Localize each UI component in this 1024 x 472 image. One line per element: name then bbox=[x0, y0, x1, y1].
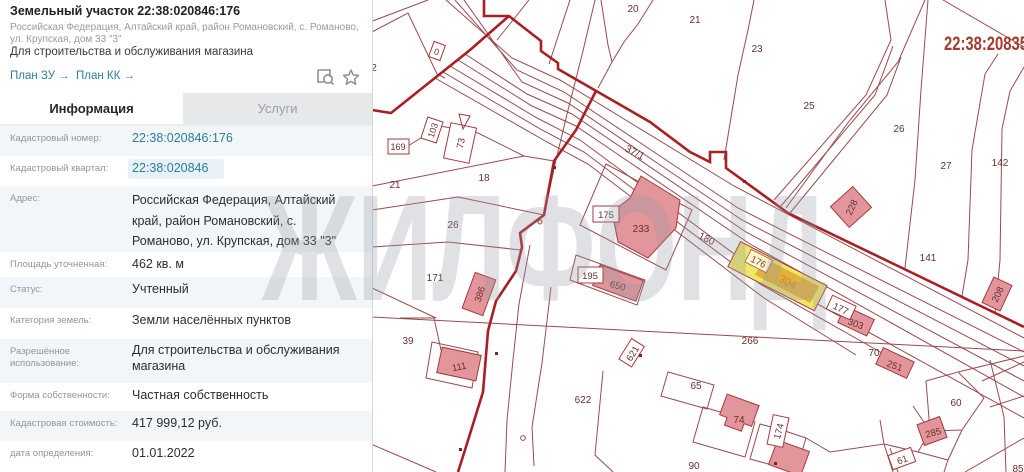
svg-text:266: 266 bbox=[742, 336, 759, 347]
svg-text:21: 21 bbox=[689, 15, 701, 26]
svg-text:141: 141 bbox=[920, 253, 937, 264]
svg-text:169: 169 bbox=[390, 142, 405, 152]
svg-text:90: 90 bbox=[688, 461, 700, 472]
svg-text:27: 27 bbox=[940, 161, 952, 172]
svg-text:65: 65 bbox=[690, 381, 702, 392]
svg-text:60: 60 bbox=[950, 398, 962, 409]
svg-text:85: 85 bbox=[1012, 464, 1024, 472]
svg-text:22:38:20835: 22:38:20835 bbox=[944, 34, 1024, 55]
svg-text:622: 622 bbox=[575, 395, 592, 406]
svg-text:142: 142 bbox=[992, 158, 1009, 169]
svg-text:39: 39 bbox=[402, 336, 414, 347]
svg-text:70: 70 bbox=[868, 348, 880, 359]
svg-text:25: 25 bbox=[803, 101, 815, 112]
svg-text:26: 26 bbox=[893, 124, 905, 135]
svg-text:73: 73 bbox=[455, 137, 468, 150]
svg-text:74: 74 bbox=[733, 415, 745, 426]
svg-text:20: 20 bbox=[627, 4, 639, 15]
svg-text:23: 23 bbox=[751, 44, 763, 55]
